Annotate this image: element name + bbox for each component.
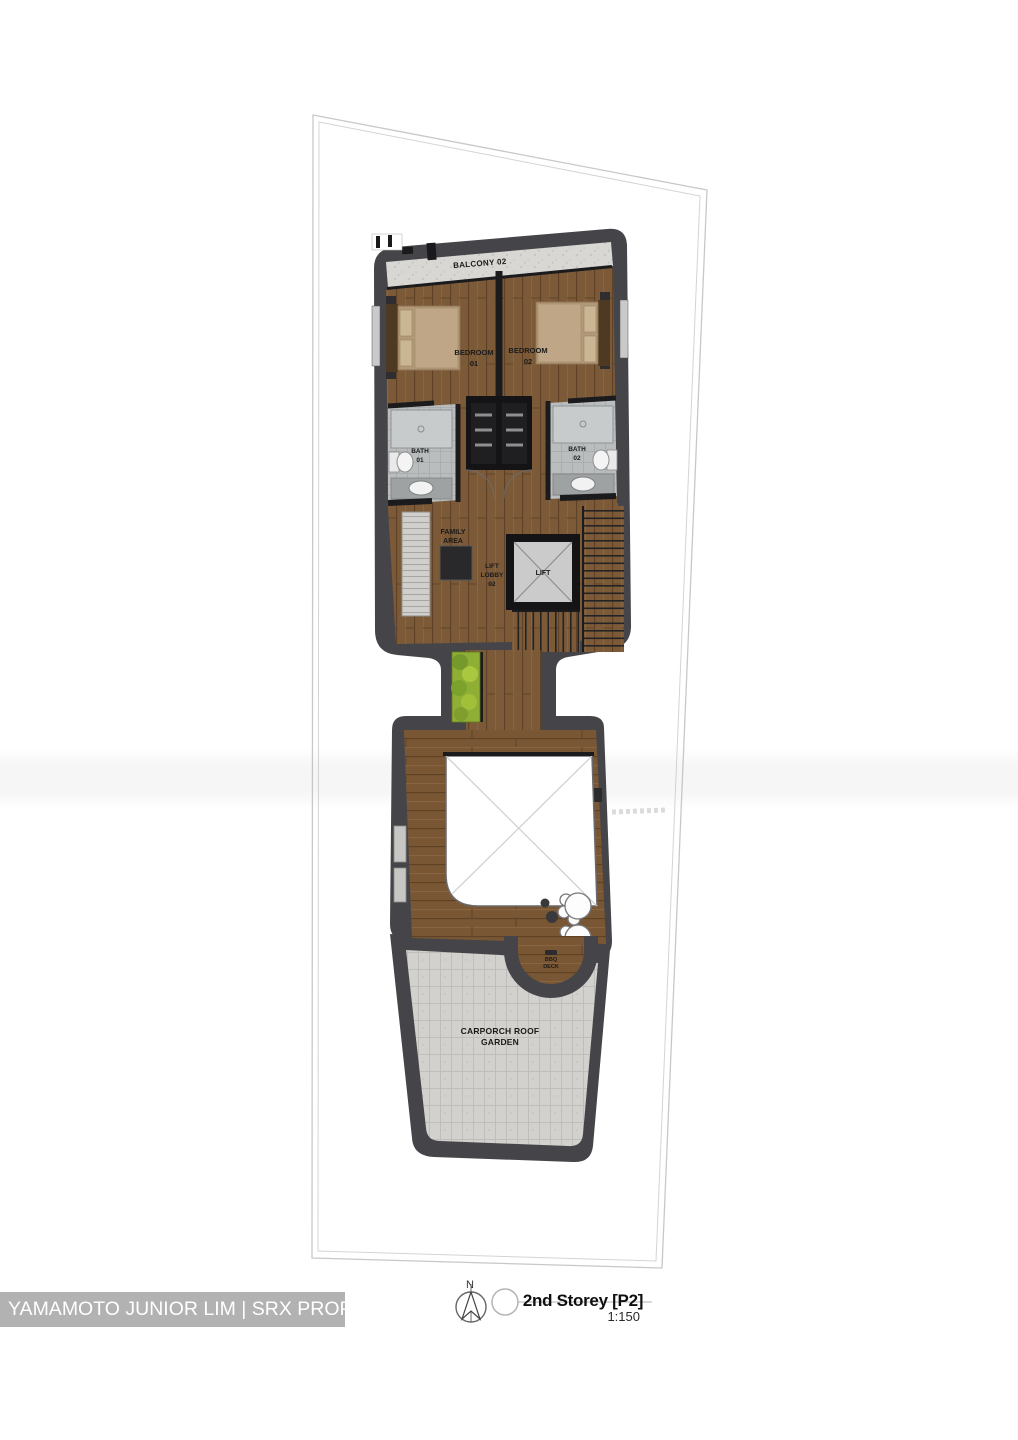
stool bbox=[546, 911, 558, 923]
carporch-label2: GARDEN bbox=[481, 1037, 519, 1047]
north-label: N bbox=[466, 1279, 474, 1291]
bed-headboard bbox=[598, 300, 610, 366]
toilet bbox=[397, 452, 413, 472]
bedroom2-label: BEDROOM bbox=[508, 346, 547, 355]
bedroom2-number: 02 bbox=[524, 357, 532, 366]
legend-scale: 1:150 bbox=[607, 1309, 640, 1324]
bath2-number: 02 bbox=[573, 455, 581, 462]
lift-lobby-label2: LOBBY bbox=[481, 572, 504, 579]
lift-lobby-number: 02 bbox=[488, 581, 496, 588]
bbq-label: BBQ bbox=[545, 957, 558, 963]
stool bbox=[541, 899, 550, 908]
balcony-planter-box bbox=[372, 234, 402, 250]
sink bbox=[409, 481, 433, 495]
bath1-label: BATH bbox=[411, 448, 429, 455]
bbq-label2: DECK bbox=[543, 964, 559, 970]
lift-label: LIFT bbox=[536, 570, 551, 577]
faint-annotation bbox=[612, 810, 666, 812]
bed-headboard bbox=[386, 304, 398, 372]
bath2-label: BATH bbox=[568, 446, 586, 453]
shower bbox=[391, 410, 452, 448]
lift-lobby-label: LIFT bbox=[485, 563, 499, 570]
bath1-number: 01 bbox=[416, 457, 424, 464]
shower bbox=[553, 406, 613, 443]
watermark-text: YAMAMOTO JUNIOR LIM | SRX PROPERTY bbox=[8, 1298, 345, 1320]
sink bbox=[571, 477, 595, 491]
legend: N 2nd Storey [P2] 1:150 bbox=[456, 1279, 652, 1324]
bedroom1-number: 01 bbox=[470, 359, 478, 368]
family-area-label2: AREA bbox=[443, 538, 463, 545]
watermark-bar: YAMAMOTO JUNIOR LIM | SRX PROPERTY bbox=[0, 1292, 345, 1327]
deck bbox=[394, 730, 606, 956]
void-opening bbox=[443, 754, 597, 906]
bbq-grill bbox=[545, 950, 557, 955]
family-area-label: FAMILY bbox=[440, 529, 465, 536]
planter bbox=[451, 652, 480, 722]
floor-plan: BALCONY 02 BEDROOM 01 BEDROOM 02 BATH 01… bbox=[0, 0, 1018, 1440]
legend-title: 2nd Storey [P2] bbox=[523, 1291, 643, 1310]
north-arrow-icon: N bbox=[456, 1279, 486, 1322]
bedroom1-label: BEDROOM bbox=[454, 348, 493, 357]
console-table bbox=[440, 546, 472, 580]
floor-plan-page: BALCONY 02 BEDROOM 01 BEDROOM 02 BATH 01… bbox=[0, 0, 1018, 1440]
toilet bbox=[593, 450, 609, 470]
carporch-label: CARPORCH ROOF bbox=[461, 1026, 540, 1036]
